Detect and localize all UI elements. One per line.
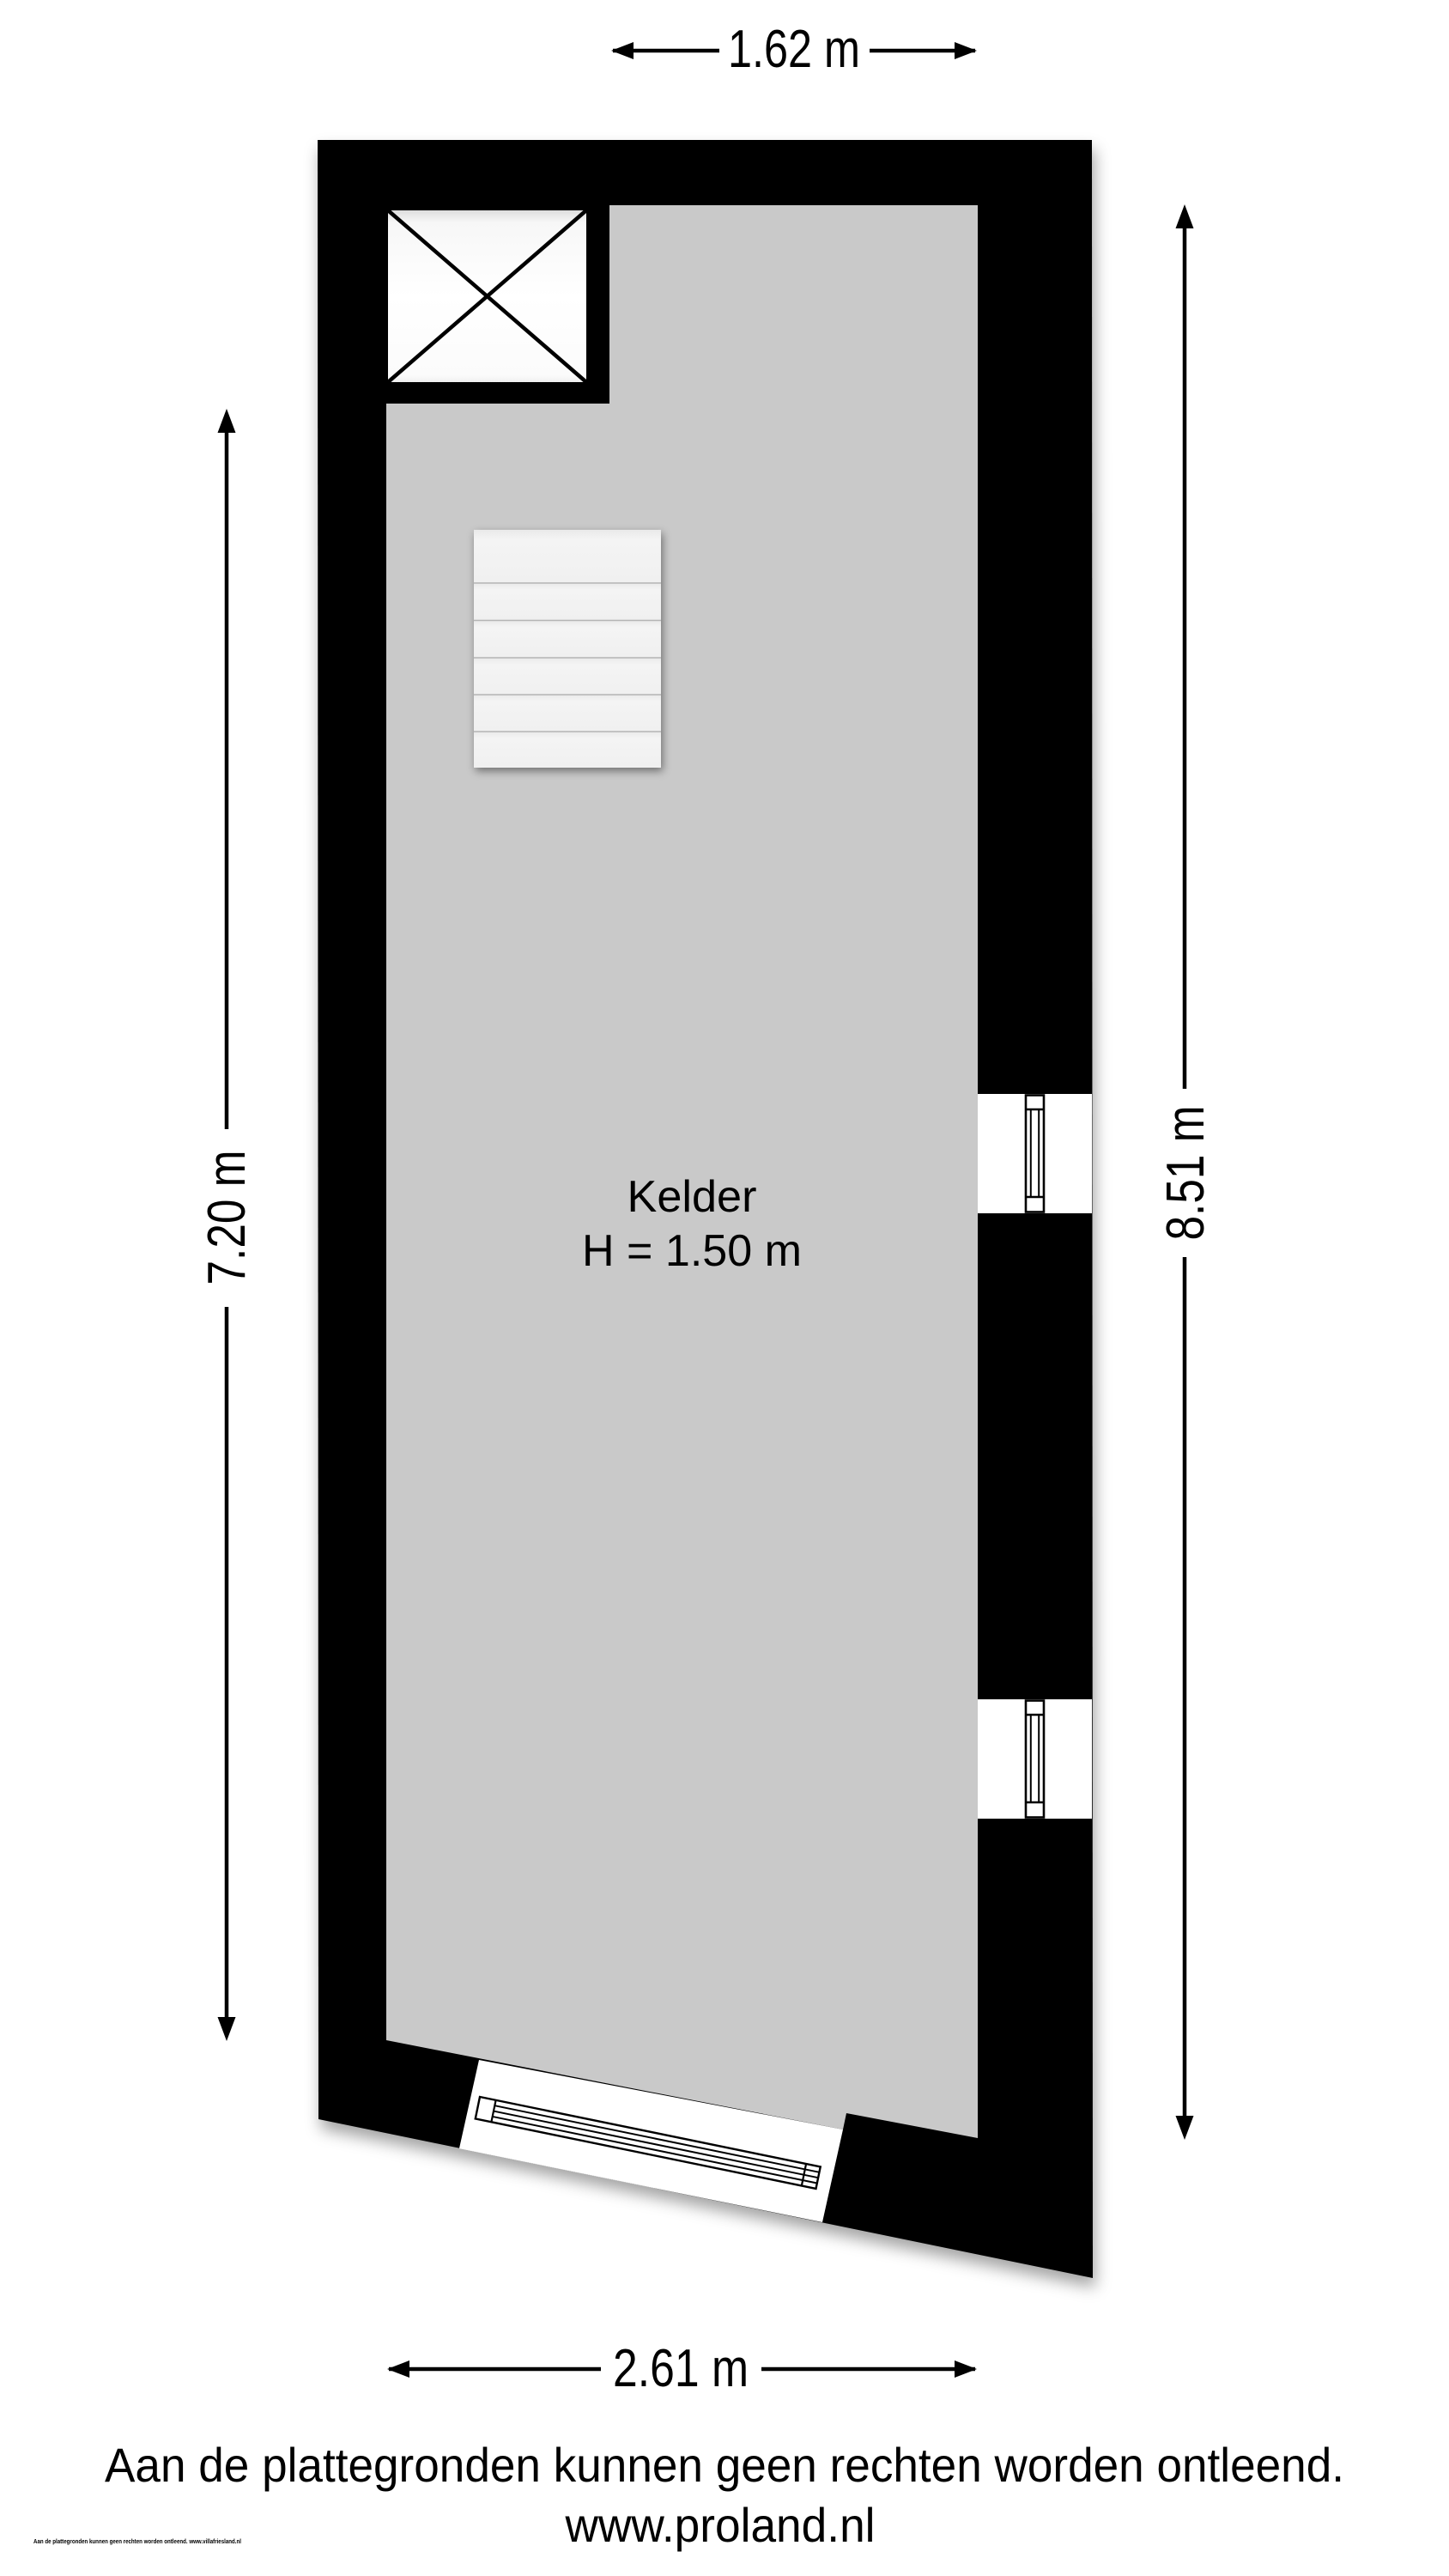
svg-text:Kelder: Kelder bbox=[627, 1172, 757, 1222]
svg-text:Aan de plattegronden kunnen ge: Aan de plattegronden kunnen geen rechten… bbox=[33, 2539, 241, 2545]
svg-text:8.51 m: 8.51 m bbox=[1156, 1106, 1216, 1241]
svg-text:2.61 m: 2.61 m bbox=[613, 2339, 749, 2398]
svg-text:Aan de plattegronden kunnen ge: Aan de plattegronden kunnen geen rechten… bbox=[105, 2438, 1344, 2492]
svg-text:1.62 m: 1.62 m bbox=[728, 20, 860, 79]
svg-text:7.20 m: 7.20 m bbox=[197, 1151, 257, 1285]
svg-text:H = 1.50 m: H = 1.50 m bbox=[582, 1226, 802, 1276]
svg-text:www.proland.nl: www.proland.nl bbox=[565, 2498, 876, 2552]
